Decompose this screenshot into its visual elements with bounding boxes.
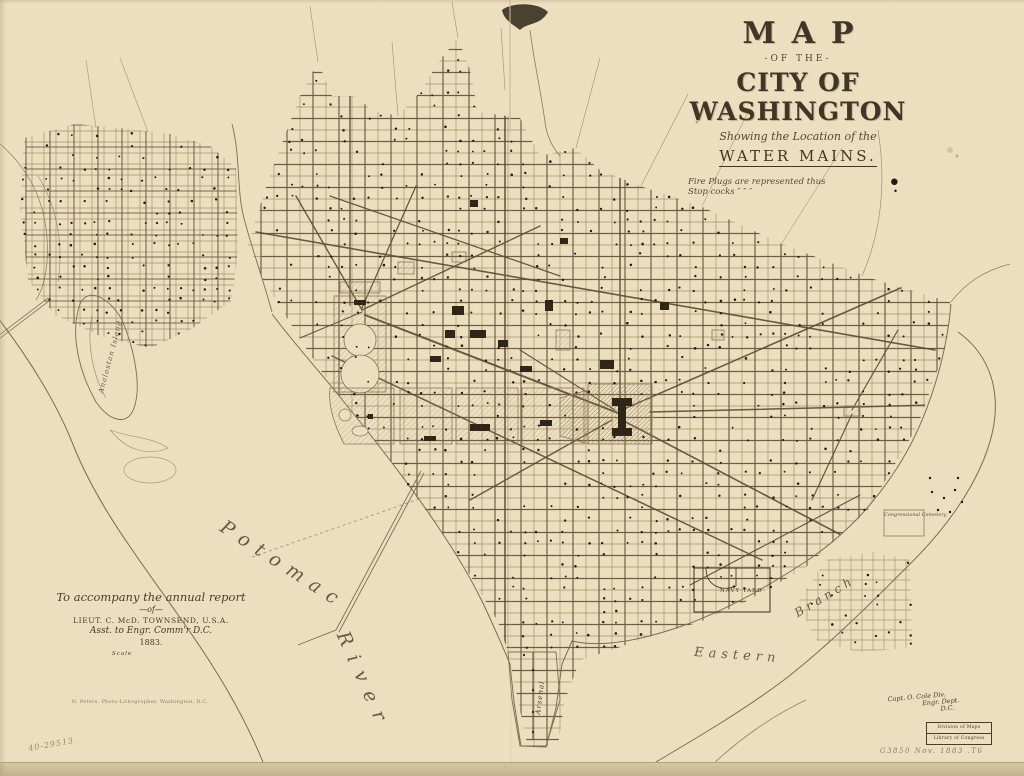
stamp-line2: Library of Congress — [927, 736, 991, 742]
fire-plug-symbol: ● — [891, 177, 898, 187]
annotation-line2: —of— — [36, 605, 266, 614]
title-city: CITY OF WASHINGTON — [648, 68, 948, 126]
stamp-line1: Division of Maps — [927, 725, 991, 734]
annotation-line5: 1883. — [36, 638, 266, 647]
scale-label: Scale — [112, 651, 132, 657]
report-annotation: To accompany the annual report —of— LIEU… — [36, 590, 266, 647]
title-subtitle: Showing the Location of the — [648, 130, 948, 143]
title-of-the: -OF THE- — [648, 54, 948, 64]
annotation-line1: To accompany the annual report — [36, 590, 266, 604]
paper-bottom-edge — [0, 762, 1024, 776]
paper-left-edge — [0, 0, 6, 775]
legend-fire-plugs-text: Fire Plugs are represented thus — [688, 177, 826, 187]
label-navy-yard: NAVY YARD — [720, 588, 763, 594]
paper-top-edge — [0, 0, 1024, 4]
legend-row-stop-cocks: Stop cocks ″ ″ ″ • — [688, 187, 898, 197]
title-block: MAP -OF THE- CITY OF WASHINGTON Showing … — [648, 16, 948, 197]
legend-stop-cocks-text: Stop cocks ″ ″ ″ — [688, 187, 752, 197]
map-legend: Fire Plugs are represented thus ● Stop c… — [688, 177, 898, 197]
annotation-line4: Asst. to Engr. Comm'r D.C. — [36, 626, 266, 636]
annotation-line3: LIEUT. C. McD. TOWNSEND, U.S.A. — [36, 616, 266, 625]
scanned-map: Potomac River Eastern Branch NAVY YARD A… — [0, 0, 1024, 775]
stop-cock-symbol: • — [893, 187, 898, 197]
legend-row-fire-plugs: Fire Plugs are represented thus ● — [688, 177, 898, 187]
pencil-call-number: G3850 Nov. 1883 .T6 — [880, 747, 983, 755]
label-congressional-cemetery: Congressional Cemetery — [884, 512, 946, 518]
lithographer-imprint: N. Peters, Photo-Lithographer, Washingto… — [60, 699, 220, 705]
title-map: MAP — [648, 16, 948, 51]
title-water-mains: WATER MAINS. — [719, 147, 876, 167]
library-of-congress-stamp: Division of Maps Library of Congress — [926, 722, 992, 745]
